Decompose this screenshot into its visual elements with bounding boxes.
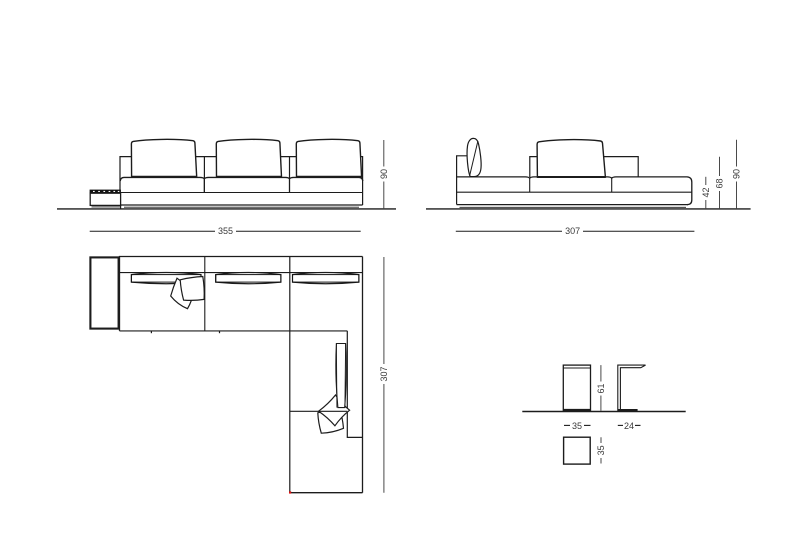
svg-text:68: 68 — [715, 178, 725, 188]
svg-text:35: 35 — [596, 445, 606, 455]
svg-text:61: 61 — [596, 383, 606, 393]
svg-text:35: 35 — [572, 421, 582, 431]
svg-text:42: 42 — [701, 187, 711, 197]
svg-text:90: 90 — [732, 169, 742, 179]
svg-text:355: 355 — [218, 226, 233, 236]
svg-text:24: 24 — [624, 421, 634, 431]
svg-text:307: 307 — [379, 366, 389, 381]
svg-text:90: 90 — [379, 169, 389, 179]
svg-text:307: 307 — [565, 226, 580, 236]
